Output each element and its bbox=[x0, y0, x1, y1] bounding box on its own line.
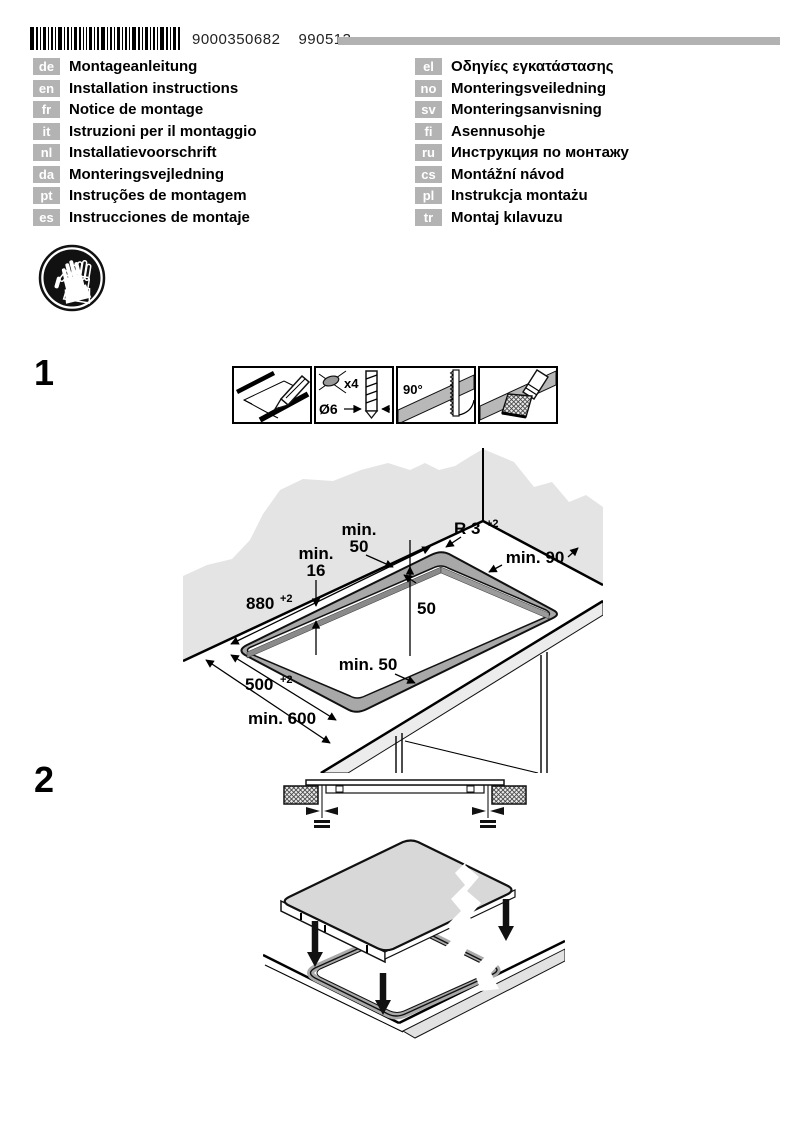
list-item: ptInstruções de montagem bbox=[33, 185, 257, 207]
list-item: elΟδηγίες εγκατάστασης bbox=[415, 56, 629, 78]
lang-code-badge: fi bbox=[415, 123, 442, 140]
lang-code-badge: pl bbox=[415, 187, 442, 204]
dim-min600: min. 600 bbox=[248, 709, 316, 728]
pencil-marking-icon bbox=[232, 366, 312, 424]
list-item: svMonteringsanvisning bbox=[415, 99, 629, 121]
lang-code-badge: fr bbox=[33, 101, 60, 118]
lang-code-badge: cs bbox=[415, 166, 442, 183]
list-item: enInstallation instructions bbox=[33, 78, 257, 100]
lang-title: Notice de montage bbox=[69, 101, 203, 118]
lang-code-badge: sv bbox=[415, 101, 442, 118]
lang-title: Οδηγίες εγκατάστασης bbox=[451, 58, 614, 75]
list-item: daMonteringsvejledning bbox=[33, 164, 257, 186]
sealant-brush-icon bbox=[478, 366, 558, 424]
list-item: plInstrukcja montażu bbox=[415, 185, 629, 207]
lang-code-badge: de bbox=[33, 58, 60, 75]
dim-min16-line2: 16 bbox=[307, 561, 326, 580]
lang-title: Montageanleitung bbox=[69, 58, 197, 75]
lang-code-badge: no bbox=[415, 80, 442, 97]
list-item: trMontaj kılavuzu bbox=[415, 207, 629, 229]
lang-title: Installation instructions bbox=[69, 80, 238, 97]
list-item: fiAsennusohje bbox=[415, 121, 629, 143]
drill-diameter-label: Ø6 bbox=[319, 401, 338, 417]
lang-code-badge: tr bbox=[415, 209, 442, 226]
lang-title: Asennusohje bbox=[451, 123, 545, 140]
dim-880-sup: +2 bbox=[280, 593, 293, 605]
list-item: ruИнструкция по монтажу bbox=[415, 142, 629, 164]
dim-880: 880 bbox=[246, 594, 274, 613]
lang-title: Monteringsanvisning bbox=[451, 101, 602, 118]
angle-label: 90° bbox=[403, 382, 423, 397]
lang-code-badge: en bbox=[33, 80, 60, 97]
step-1-number: 1 bbox=[34, 355, 54, 391]
lang-code-badge: el bbox=[415, 58, 442, 75]
lang-title: Monteringsveiledning bbox=[451, 80, 606, 97]
list-item: nlInstallatievoorschrift bbox=[33, 142, 257, 164]
lang-title: Instrukcja montażu bbox=[451, 187, 588, 204]
dim-r3: R 3 bbox=[454, 519, 480, 538]
list-item: noMonteringsveiledning bbox=[415, 78, 629, 100]
language-list-left: deMontageanleitung enInstallation instru… bbox=[33, 56, 257, 228]
step-2-insert-diagram bbox=[263, 835, 565, 1043]
drill-count-label: x4 bbox=[344, 376, 359, 391]
lang-code-badge: es bbox=[33, 209, 60, 226]
lang-title: Montážní návod bbox=[451, 166, 564, 183]
dim-500-sup: +2 bbox=[280, 674, 293, 686]
list-item: deMontageanleitung bbox=[33, 56, 257, 78]
step-1-toolbar: x4 Ø6 90° bbox=[232, 366, 560, 424]
dim-r3-sup: +2 bbox=[486, 518, 499, 530]
lang-title: Instruções de montagem bbox=[69, 187, 247, 204]
lang-code-badge: ru bbox=[415, 144, 442, 161]
drill-x4-icon: x4 Ø6 bbox=[314, 366, 394, 424]
order-number: 9000350682 bbox=[192, 31, 280, 48]
lang-code-badge: da bbox=[33, 166, 60, 183]
barcode bbox=[30, 27, 183, 50]
list-item: frNotice de montage bbox=[33, 99, 257, 121]
lang-code-badge: pt bbox=[33, 187, 60, 204]
list-item: csMontážní návod bbox=[415, 164, 629, 186]
lang-title: Installatievoorschrift bbox=[69, 144, 217, 161]
step-2-number: 2 bbox=[34, 762, 54, 798]
lang-title: Istruzioni per il montaggio bbox=[69, 123, 257, 140]
header-rule bbox=[338, 37, 780, 45]
dim-min50-bottom: min. 50 bbox=[339, 655, 398, 674]
lang-title: Instrucciones de montaje bbox=[69, 209, 250, 226]
protective-gloves-icon bbox=[37, 243, 107, 313]
dim-500: 500 bbox=[245, 675, 273, 694]
step-1-cutout-diagram: 880 +2 min. 16 min. 50 R 3 +2 min. 90 50… bbox=[183, 443, 603, 773]
lang-title: Montaj kılavuzu bbox=[451, 209, 563, 226]
lang-title: Инструкция по монтажу bbox=[451, 144, 629, 161]
list-item: esInstrucciones de montaje bbox=[33, 207, 257, 229]
lang-code-badge: it bbox=[33, 123, 60, 140]
step-2-cross-section bbox=[278, 772, 532, 834]
dim-min90: min. 90 bbox=[506, 548, 565, 567]
instruction-page: 9000350682990513 deMontageanleitung enIn… bbox=[0, 0, 802, 1134]
list-item: itIstruzioni per il montaggio bbox=[33, 121, 257, 143]
dim-min50-top-line2: 50 bbox=[350, 537, 369, 556]
language-list-right: elΟδηγίες εγκατάστασης noMonteringsveile… bbox=[415, 56, 629, 228]
lang-code-badge: nl bbox=[33, 144, 60, 161]
saw-90-degrees-icon: 90° bbox=[396, 366, 476, 424]
dim-50: 50 bbox=[417, 599, 436, 618]
lang-title: Monteringsvejledning bbox=[69, 166, 224, 183]
